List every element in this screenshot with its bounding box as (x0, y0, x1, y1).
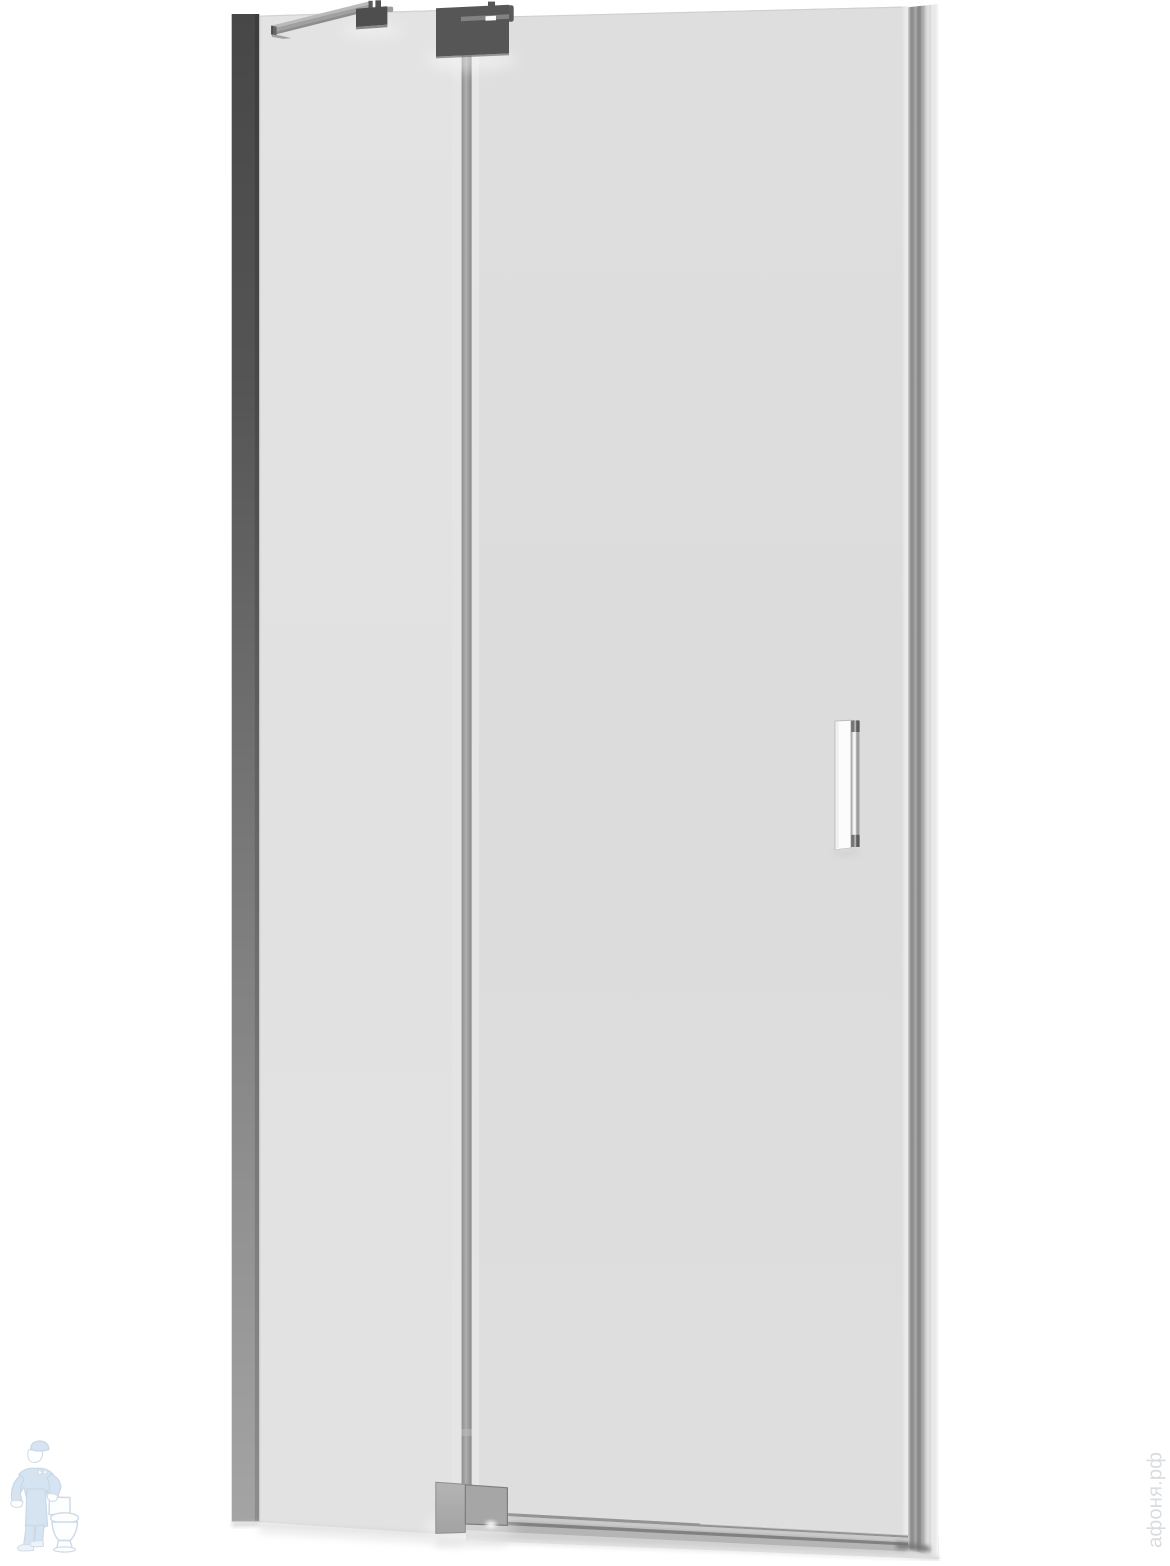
svg-text:афоня.рф: афоня.рф (1144, 1452, 1167, 1548)
